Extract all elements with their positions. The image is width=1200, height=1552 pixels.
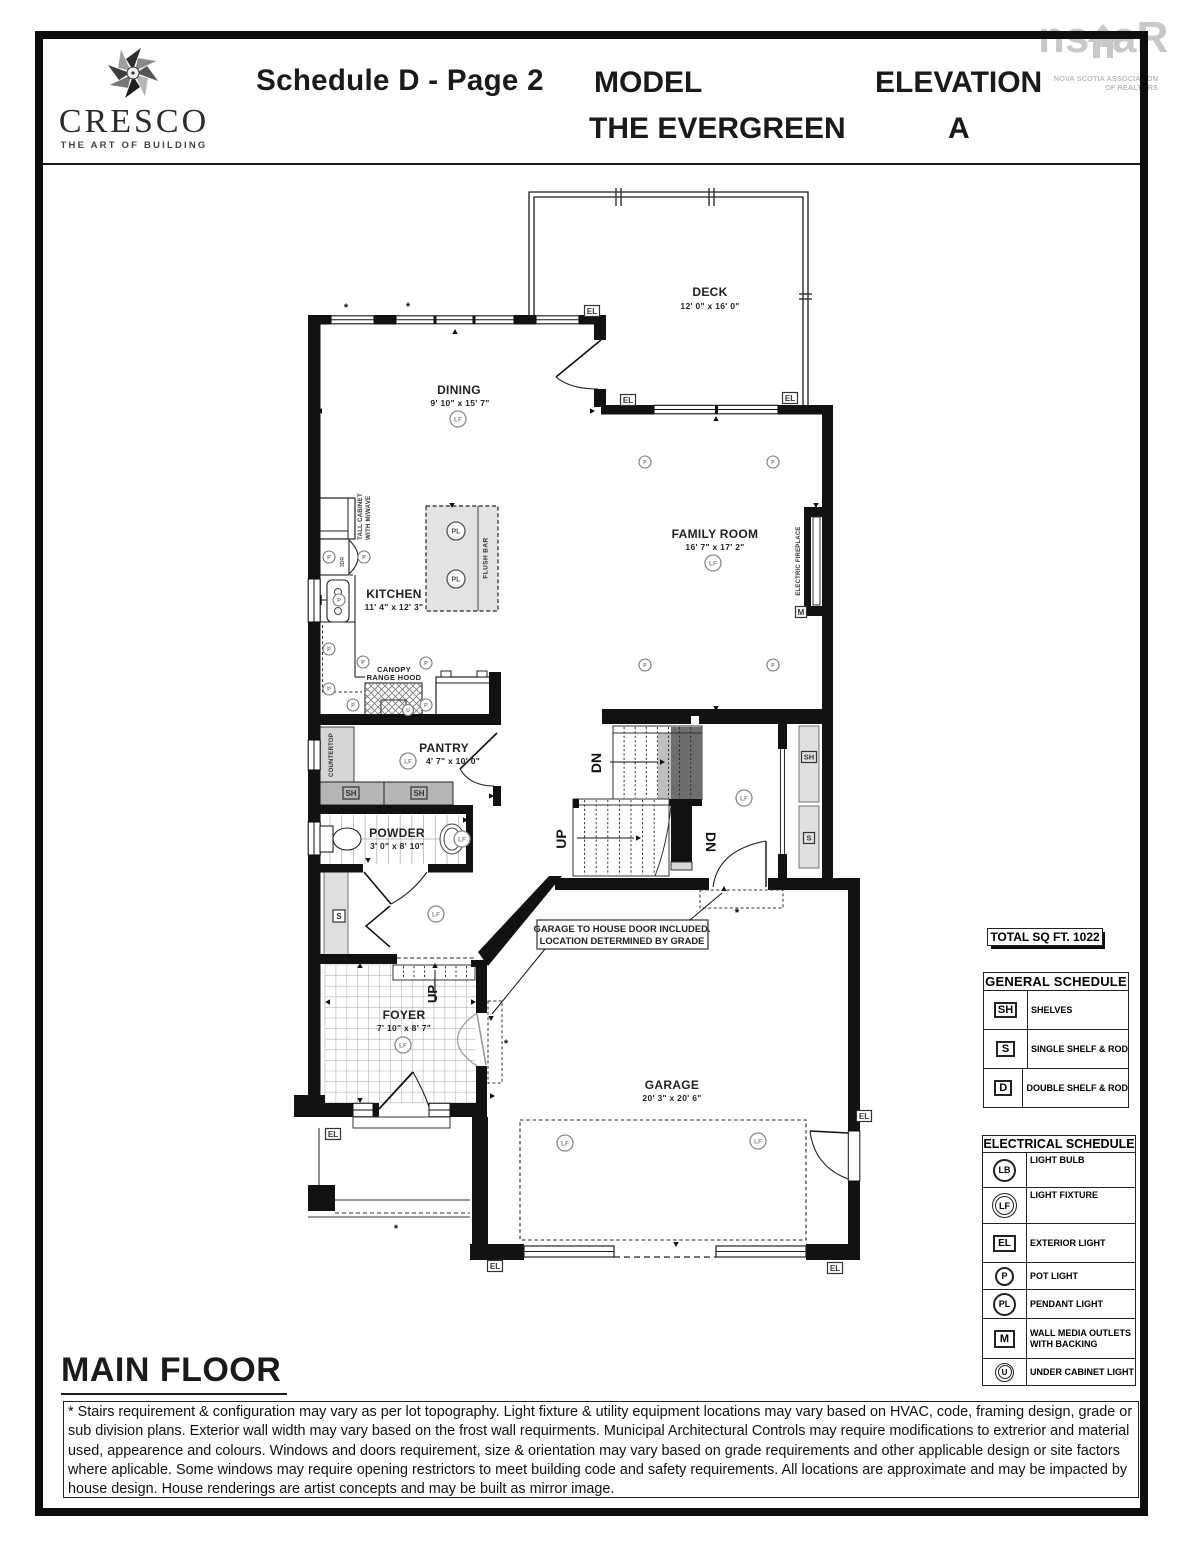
svg-text:SH: SH — [413, 789, 424, 798]
svg-text:LF: LF — [754, 1138, 762, 1145]
svg-text:WITH M/WAVE: WITH M/WAVE — [365, 496, 372, 540]
svg-text:LF: LF — [709, 560, 717, 567]
svg-text:PL: PL — [452, 529, 462, 536]
svg-text:20' 3" x 20' 6": 20' 3" x 20' 6" — [642, 1093, 701, 1103]
svg-text:DINING: DINING — [437, 383, 481, 397]
svg-text:P: P — [424, 661, 428, 667]
svg-text:P: P — [362, 555, 366, 561]
svg-text:*: * — [735, 907, 740, 919]
svg-text:DN: DN — [588, 753, 604, 773]
svg-text:*: * — [344, 302, 349, 314]
svg-text:RANGE HOOD: RANGE HOOD — [367, 673, 422, 682]
svg-text:PANTRY: PANTRY — [419, 741, 469, 755]
svg-text:7' 10" x 8' 7": 7' 10" x 8' 7" — [377, 1023, 431, 1033]
svg-text:LF: LF — [399, 1042, 407, 1049]
svg-text:LOCATION DETERMINED BY GRADE: LOCATION DETERMINED BY GRADE — [540, 935, 705, 946]
svg-text:FOYER: FOYER — [383, 1008, 426, 1022]
svg-text:LF: LF — [561, 1140, 569, 1147]
svg-text:EL: EL — [587, 307, 597, 316]
svg-text:SH: SH — [804, 753, 814, 762]
svg-text:9' 10" x 15' 7": 9' 10" x 15' 7" — [430, 398, 489, 408]
svg-text:DN: DN — [703, 832, 719, 852]
svg-text:TALL CABINET: TALL CABINET — [357, 493, 364, 540]
svg-text:ELECTRIC FIREPLACE: ELECTRIC FIREPLACE — [796, 526, 802, 595]
svg-text:LF: LF — [458, 836, 466, 843]
svg-text:3' 0" x 8' 10": 3' 0" x 8' 10" — [370, 841, 424, 851]
svg-text:M: M — [798, 608, 805, 617]
svg-text:P: P — [327, 647, 331, 653]
svg-text:P: P — [771, 460, 775, 466]
svg-text:11' 4" x 12' 3": 11' 4" x 12' 3" — [365, 602, 424, 612]
svg-text:P: P — [327, 687, 331, 693]
svg-text:COUNTERTOP: COUNTERTOP — [329, 733, 335, 777]
svg-text:EL: EL — [623, 396, 633, 405]
svg-text:P: P — [351, 703, 355, 709]
svg-text:4' 7" x 10' 0": 4' 7" x 10' 0" — [426, 756, 480, 766]
svg-text:P: P — [643, 663, 647, 669]
svg-text:S: S — [336, 912, 342, 921]
svg-text:GARAGE TO HOUSE DOOR INCLUDED.: GARAGE TO HOUSE DOOR INCLUDED. — [534, 923, 711, 934]
svg-text:LF: LF — [740, 795, 748, 802]
svg-text:EL: EL — [785, 394, 795, 403]
svg-text:S: S — [806, 834, 811, 843]
svg-text:DECK: DECK — [692, 285, 727, 299]
svg-text:FAMILY ROOM: FAMILY ROOM — [672, 527, 759, 541]
svg-text:UP: UP — [425, 985, 440, 1003]
svg-text:KITCHEN: KITCHEN — [366, 587, 421, 601]
svg-text:LF: LF — [404, 758, 412, 765]
svg-text:16' 7" x 17' 2": 16' 7" x 17' 2" — [685, 542, 744, 552]
svg-text:*: * — [504, 1038, 509, 1050]
svg-text:P: P — [361, 660, 365, 666]
svg-text:P: P — [327, 555, 331, 561]
svg-text:P: P — [424, 703, 428, 709]
svg-text:PL: PL — [452, 577, 462, 584]
svg-text:POWDER: POWDER — [369, 826, 425, 840]
svg-text:UP: UP — [553, 829, 569, 848]
svg-text:FLUSH BAR: FLUSH BAR — [483, 537, 490, 578]
svg-text:*: * — [406, 301, 411, 313]
svg-text:P: P — [771, 663, 775, 669]
svg-text:EL: EL — [328, 1130, 338, 1139]
svg-text:EL: EL — [490, 1262, 500, 1271]
svg-text:P: P — [337, 598, 341, 604]
svg-text:EL: EL — [830, 1264, 840, 1273]
svg-text:OF REALTORS: OF REALTORS — [1105, 83, 1158, 92]
svg-text:LF: LF — [432, 911, 440, 918]
svg-text:P: P — [643, 460, 647, 466]
svg-text:GARAGE: GARAGE — [645, 1078, 699, 1092]
svg-text:12' 0" x 16' 0": 12' 0" x 16' 0" — [680, 301, 739, 311]
svg-text:*: * — [394, 1223, 399, 1235]
svg-text:EL: EL — [859, 1112, 869, 1121]
svg-text:U: U — [406, 708, 410, 714]
svg-text:SH: SH — [345, 789, 356, 798]
svg-text:3DR: 3DR — [340, 557, 346, 567]
svg-text:LF: LF — [454, 416, 462, 423]
